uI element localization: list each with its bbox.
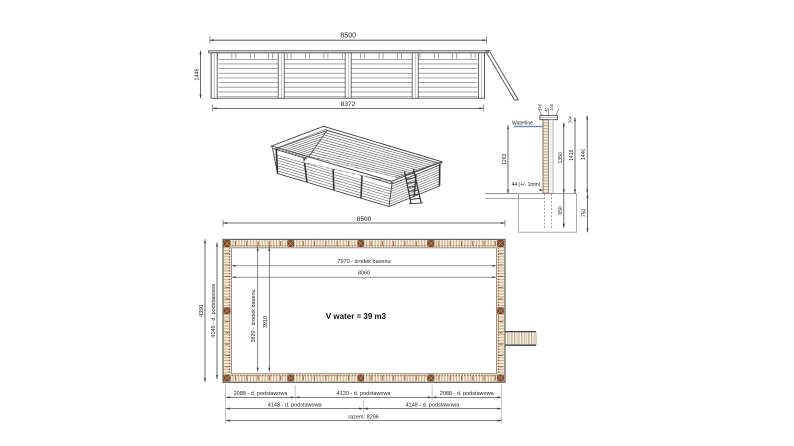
svg-text:45: 45 — [544, 107, 548, 111]
svg-text:8372: 8372 — [341, 101, 356, 108]
svg-text:7970 - środek basenu: 7970 - środek basenu — [337, 259, 390, 265]
svg-text:razem: 8296: razem: 8296 — [348, 414, 379, 420]
svg-text:4148 - d. podstawowa: 4148 - d. podstawowa — [405, 402, 460, 408]
svg-text:Waterline: Waterline — [512, 121, 533, 127]
svg-text:1446: 1446 — [194, 68, 200, 80]
svg-text:1350: 1350 — [558, 152, 564, 163]
svg-text:650: 650 — [558, 206, 564, 215]
svg-text:204: 204 — [568, 115, 573, 123]
svg-text:2088 - d. podstawowa: 2088 - d. podstawowa — [440, 391, 495, 397]
svg-text:145: 145 — [549, 103, 554, 111]
svg-text:4350: 4350 — [199, 305, 205, 317]
svg-text:1263: 1263 — [502, 154, 508, 165]
svg-text:3910: 3910 — [263, 316, 269, 328]
svg-text:44 (+/- 1mm): 44 (+/- 1mm) — [512, 182, 541, 188]
svg-text:V water = 39 m3: V water = 39 m3 — [326, 312, 387, 321]
svg-text:2088 - d. podstawowa: 2088 - d. podstawowa — [234, 391, 289, 397]
svg-text:145: 145 — [538, 103, 543, 111]
svg-text:8500: 8500 — [357, 216, 372, 223]
svg-text:1418: 1418 — [569, 150, 575, 161]
svg-text:3820 - środek basenu: 3820 - środek basenu — [251, 289, 257, 342]
svg-text:4146 - d. podstawowa: 4146 - d. podstawowa — [211, 283, 217, 338]
svg-text:750: 750 — [582, 209, 588, 218]
svg-text:8500: 8500 — [340, 32, 356, 39]
svg-text:4120 - d. podstawowa: 4120 - d. podstawowa — [337, 391, 392, 397]
svg-text:4148 - d. podstawowa: 4148 - d. podstawowa — [268, 402, 323, 408]
svg-text:8060: 8060 — [358, 271, 370, 277]
svg-text:1446: 1446 — [581, 149, 587, 160]
